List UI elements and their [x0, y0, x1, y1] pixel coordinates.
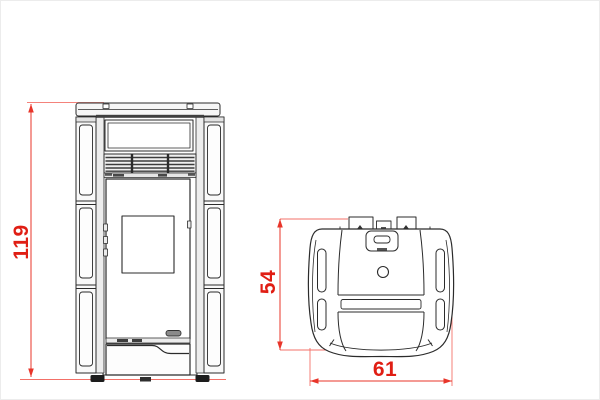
top-flue-stubs [349, 217, 416, 229]
technical-drawing-canvas: 119 54 61 [0, 0, 600, 400]
depth-dimension-label: 54 [258, 252, 280, 312]
front-feet [91, 375, 210, 382]
front-right-column [204, 117, 224, 373]
front-left-column [76, 117, 96, 373]
front-air-grille [104, 154, 196, 178]
top-back-latch [366, 231, 398, 251]
top-view [308, 217, 453, 357]
stove-dimension-diagram [0, 0, 600, 400]
door-latch [166, 331, 181, 337]
front-upper-panel [105, 120, 193, 151]
front-ash-drawer [106, 344, 190, 375]
width-dimension-label: 61 [355, 359, 415, 381]
front-door-sill [106, 338, 190, 343]
door-window [122, 216, 174, 273]
front-fire-door [104, 179, 192, 339]
door-hinge [104, 224, 108, 231]
height-dimension-label: 119 [11, 212, 33, 272]
door-hinge [104, 237, 108, 244]
front-view [76, 103, 224, 382]
door-hinge [104, 249, 108, 256]
front-top-lid [76, 103, 220, 118]
